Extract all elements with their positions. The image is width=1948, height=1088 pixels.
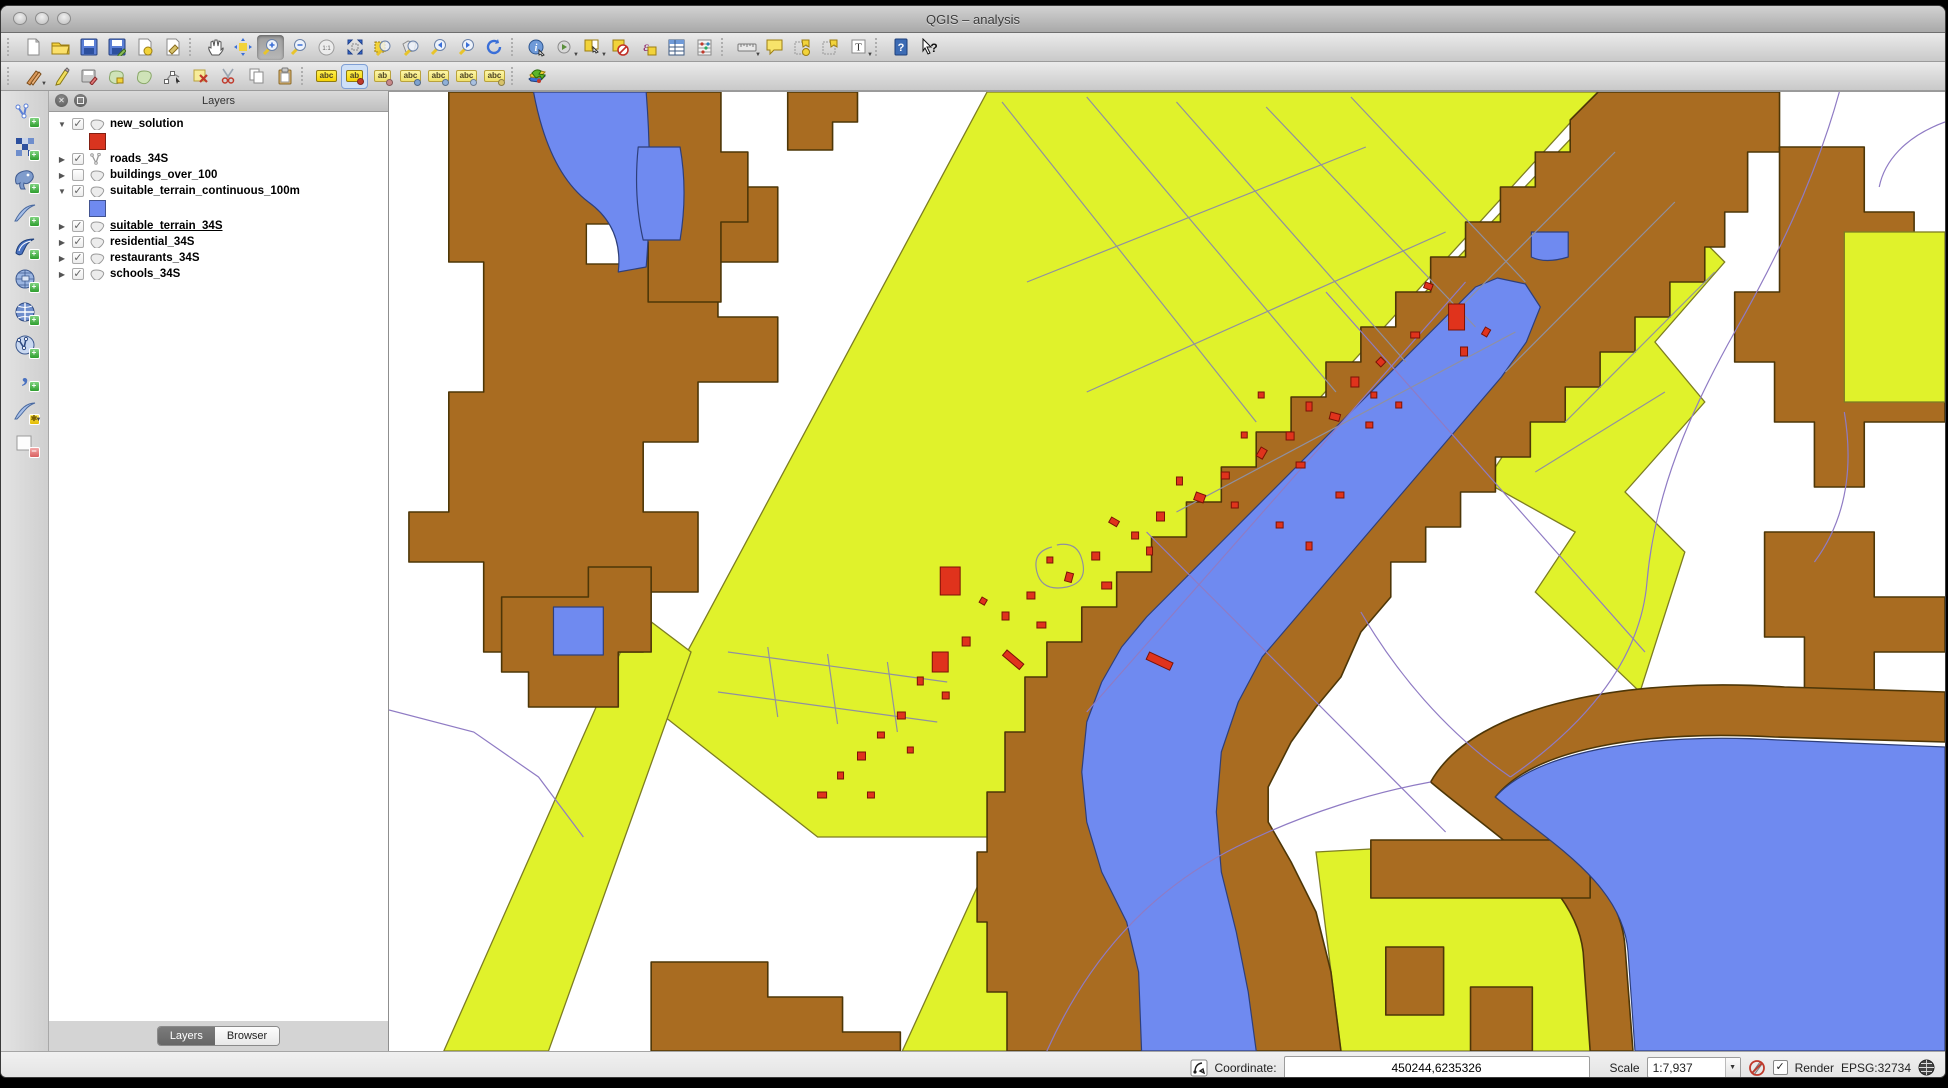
toolbar-handle[interactable]	[7, 38, 14, 56]
pencil-icon	[498, 79, 505, 86]
move-arrow-icon	[442, 79, 449, 86]
add-wfs-layer-button[interactable]: +	[9, 330, 41, 359]
delete-selected-button[interactable]	[187, 64, 214, 89]
polygon-layer-icon	[89, 220, 105, 232]
polygon-layer-icon	[89, 169, 105, 181]
help-glyph: ?	[897, 42, 904, 54]
save-edits-button[interactable]	[75, 64, 102, 89]
add-mssql-layer-button[interactable]: +	[9, 231, 41, 260]
plus-badge: +	[29, 348, 40, 359]
coordinate-extent-icon[interactable]	[1190, 1059, 1208, 1077]
node-tool-button[interactable]	[159, 64, 186, 89]
panel-title: Layers	[202, 95, 235, 107]
layer-checkbox[interactable]: ✓	[72, 185, 84, 197]
layer-checkbox[interactable]: ✓	[72, 118, 84, 130]
zoom-last-button[interactable]	[425, 35, 452, 60]
eye-icon	[414, 79, 421, 86]
expander-icon[interactable]: ▶	[57, 171, 67, 180]
stop-render-icon[interactable]	[1748, 1059, 1766, 1077]
layer-symbology-row	[49, 132, 388, 151]
layer-name[interactable]: schools_34S	[110, 268, 180, 280]
add-vector-layer-button[interactable]: +	[9, 99, 41, 128]
add-wcs-layer-button[interactable]: +	[9, 297, 41, 326]
save-project-as-button[interactable]	[103, 35, 130, 60]
expander-icon[interactable]: ▼	[57, 120, 67, 129]
panel-tabstrip: Layers Browser	[49, 1021, 388, 1051]
red-pin-icon	[357, 78, 364, 85]
layer-row-schools[interactable]: ▶ ✓ schools_34S	[49, 266, 388, 282]
run-feature-action-button[interactable]: ▼	[551, 35, 578, 60]
layer-row-new-solution[interactable]: ▼ ✓ new_solution	[49, 116, 388, 132]
blue-swatch	[89, 200, 106, 217]
expander-icon[interactable]: ▼	[57, 187, 67, 196]
change-label-button[interactable]: abc	[481, 64, 508, 89]
add-raster-layer-button[interactable]: +	[9, 132, 41, 161]
layer-checkbox[interactable]: ✓	[72, 236, 84, 248]
zoom-to-selection-button[interactable]	[369, 35, 396, 60]
whats-this-button[interactable]: ?	[915, 35, 942, 60]
comma-glyph: ,	[21, 367, 28, 388]
remove-layer-button[interactable]: −	[9, 429, 41, 458]
layer-list: ▼ ✓ new_solution ▶ ✓ roads_34S ▶ ✓	[49, 112, 388, 1021]
plus-badge: +	[29, 249, 40, 260]
layer-checkbox[interactable]: ✓	[72, 220, 84, 232]
expander-icon[interactable]: ▶	[57, 238, 67, 247]
yellow-patch-right	[1844, 232, 1945, 402]
plus-badge: +	[29, 216, 40, 227]
text-annotation-button[interactable]: T▼	[845, 35, 872, 60]
layer-name[interactable]: suitable_terrain_continuous_100m	[110, 185, 300, 197]
zoom-native-button[interactable]: 1:1	[313, 35, 340, 60]
rotate-label-button[interactable]: abc	[453, 64, 480, 89]
pin-labels-button[interactable]: ab	[341, 64, 368, 89]
panel-float-icon[interactable]	[74, 94, 87, 107]
help-button[interactable]: ?	[887, 35, 914, 60]
layer-row-buildings-over-100[interactable]: ▶ ✓ buildings_over_100	[49, 167, 388, 183]
layer-symbology-row	[49, 199, 388, 218]
new-spatialite-layer-button[interactable]: ✱▼	[9, 396, 41, 425]
layers-panel-header: ✕ Layers	[49, 91, 388, 112]
polygon-layer-icon	[89, 252, 105, 264]
show-hide-labels-button[interactable]: abc	[397, 64, 424, 89]
deselect-features-button[interactable]	[607, 35, 634, 60]
zoom-out-button[interactable]	[285, 35, 312, 60]
zoom-next-button[interactable]	[453, 35, 480, 60]
toolbar-handle[interactable]	[721, 38, 728, 56]
layer-name[interactable]: roads_34S	[110, 153, 168, 165]
save-project-button[interactable]	[75, 35, 102, 60]
add-postgis-layer-button[interactable]: +	[9, 165, 41, 194]
tab-browser[interactable]: Browser	[215, 1027, 279, 1045]
show-bookmarks-button[interactable]	[817, 35, 844, 60]
whats-this-glyph: ?	[930, 41, 937, 55]
paste-features-button[interactable]	[271, 64, 298, 89]
layer-name[interactable]: new_solution	[110, 118, 183, 130]
scale-label: Scale	[1610, 1061, 1640, 1075]
measure-button[interactable]: ▼	[733, 35, 760, 60]
move-feature-button[interactable]	[131, 64, 158, 89]
toolbar-handle[interactable]	[301, 67, 308, 85]
open-project-button[interactable]	[47, 35, 74, 60]
status-bar: Coordinate: Scale 1:7,937 ▼ ✓ Render EPS…	[1, 1051, 1945, 1078]
layer-row-suitable-terrain-continuous[interactable]: ▼ ✓ suitable_terrain_continuous_100m	[49, 183, 388, 199]
composer-manager-button[interactable]	[159, 35, 186, 60]
cut-features-button[interactable]	[215, 64, 242, 89]
layer-row-suitable-terrain[interactable]: ▶ ✓ suitable_terrain_34S	[49, 218, 388, 234]
crs-status-icon[interactable]	[1918, 1059, 1935, 1076]
toolbar-handle[interactable]	[7, 67, 14, 85]
zoom-to-layer-button[interactable]	[397, 35, 424, 60]
panel-close-icon[interactable]: ✕	[55, 94, 68, 107]
attribute-table-button[interactable]	[663, 35, 690, 60]
toolbar-handle[interactable]	[875, 38, 882, 56]
add-spatialite-layer-button[interactable]: +	[9, 198, 41, 227]
highlight-labels-button[interactable]: ab	[369, 64, 396, 89]
tab-layers[interactable]: Layers	[158, 1027, 215, 1045]
coordinate-input[interactable]	[1284, 1056, 1590, 1078]
add-feature-button[interactable]	[103, 64, 130, 89]
current-edits-button[interactable]: ▼	[19, 64, 46, 89]
toolbar-handle[interactable]	[511, 38, 518, 56]
layer-name[interactable]: residential_34S	[110, 236, 194, 248]
layer-checkbox[interactable]: ✓	[72, 252, 84, 264]
polygon-layer-icon	[89, 236, 105, 248]
plus-badge: +	[29, 150, 40, 161]
epsilon-glyph: ε	[643, 40, 649, 55]
zoom-full-button[interactable]	[341, 35, 368, 60]
new-project-button[interactable]	[19, 35, 46, 60]
polygon-layer-icon	[89, 118, 105, 130]
add-delimited-text-layer-button[interactable]: ,+	[9, 363, 41, 392]
epsg-label: EPSG:32734	[1841, 1061, 1911, 1075]
rotate-arrow-icon	[470, 79, 477, 86]
toolbar-handle[interactable]	[189, 38, 196, 56]
processing-button[interactable]	[523, 64, 550, 89]
plus-badge: +	[29, 183, 40, 194]
map-canvas[interactable]	[389, 91, 1945, 1051]
qgis-window: QGIS – analysis 1:1 i ▼ ▼ ε ▼ T	[0, 5, 1946, 1078]
zoom-native-label: 1:1	[322, 46, 331, 52]
refresh-button[interactable]	[481, 35, 508, 60]
new-composer-button[interactable]	[131, 35, 158, 60]
layer-checkbox[interactable]: ✓	[72, 169, 84, 181]
select-features-button[interactable]: ▼	[579, 35, 606, 60]
render-label: Render	[1795, 1061, 1834, 1075]
render-checkbox[interactable]: ✓	[1773, 1060, 1788, 1075]
copy-features-button[interactable]	[243, 64, 270, 89]
layer-name[interactable]: restaurants_34S	[110, 252, 200, 264]
polygon-layer-icon	[89, 268, 105, 280]
layer-row-restaurants[interactable]: ▶ ✓ restaurants_34S	[49, 250, 388, 266]
expander-icon[interactable]: ▶	[57, 222, 67, 231]
layer-name[interactable]: buildings_over_100	[110, 169, 217, 181]
zoom-window-button[interactable]	[57, 12, 71, 25]
labeling-icon: abc	[316, 70, 338, 82]
minus-badge: −	[29, 447, 40, 458]
identify-features-button[interactable]: i	[523, 35, 550, 60]
chevron-down-icon[interactable]: ▼	[1725, 1058, 1740, 1077]
toolbar-main: 1:1 i ▼ ▼ ε ▼ T▼ ? ?	[1, 33, 1945, 62]
plus-badge: +	[29, 117, 40, 128]
layer-row-residential[interactable]: ▶ ✓ residential_34S	[49, 234, 388, 250]
layer-row-roads[interactable]: ▶ ✓ roads_34S	[49, 151, 388, 167]
text-annotation-glyph: T	[855, 42, 862, 54]
pink-pin-icon	[386, 79, 393, 86]
expander-icon[interactable]: ▶	[57, 270, 67, 279]
pan-map-button[interactable]	[201, 35, 228, 60]
field-calculator-button[interactable]	[691, 35, 718, 60]
svg-text:i: i	[535, 43, 538, 54]
plus-badge: +	[29, 381, 40, 392]
close-window-button[interactable]	[13, 12, 27, 25]
line-layer-icon	[89, 153, 105, 165]
coordinate-label: Coordinate:	[1215, 1061, 1277, 1075]
layers-panel: ✕ Layers ▼ ✓ new_solution ▶ ✓	[49, 91, 389, 1051]
plus-badge: +	[29, 315, 40, 326]
expander-icon[interactable]: ▶	[57, 155, 67, 164]
layer-checkbox[interactable]: ✓	[72, 268, 84, 280]
new-bookmark-button[interactable]	[789, 35, 816, 60]
pan-to-selection-button[interactable]	[229, 35, 256, 60]
minimize-window-button[interactable]	[35, 12, 49, 25]
toggle-editing-button[interactable]	[47, 64, 74, 89]
expander-icon[interactable]: ▶	[57, 254, 67, 263]
labeling-button[interactable]: abc	[313, 64, 340, 89]
title-bar: QGIS – analysis	[1, 6, 1945, 33]
add-wms-layer-button[interactable]: +	[9, 264, 41, 293]
scale-combobox[interactable]: 1:7,937 ▼	[1647, 1057, 1741, 1078]
select-by-expression-button[interactable]: ε	[635, 35, 662, 60]
layer-name[interactable]: suitable_terrain_34S	[110, 220, 223, 232]
window-title: QGIS – analysis	[926, 12, 1020, 27]
scale-value: 1:7,937	[1648, 1061, 1725, 1075]
map-tips-button[interactable]	[761, 35, 788, 60]
plus-badge: +	[29, 282, 40, 293]
layer-checkbox[interactable]: ✓	[72, 153, 84, 165]
move-label-button[interactable]: abc	[425, 64, 452, 89]
zoom-in-button[interactable]	[257, 35, 284, 60]
toolbar-handle[interactable]	[511, 67, 518, 85]
toolbar-digitizing: ▼ abc ab ab abc abc abc abc	[1, 62, 1945, 91]
map-svg	[389, 92, 1945, 1051]
toolbar-manage-layers: + + + + + + + + ,+ ✱▼ −	[1, 91, 49, 1051]
polygon-layer-icon	[89, 185, 105, 197]
red-swatch	[89, 133, 106, 150]
